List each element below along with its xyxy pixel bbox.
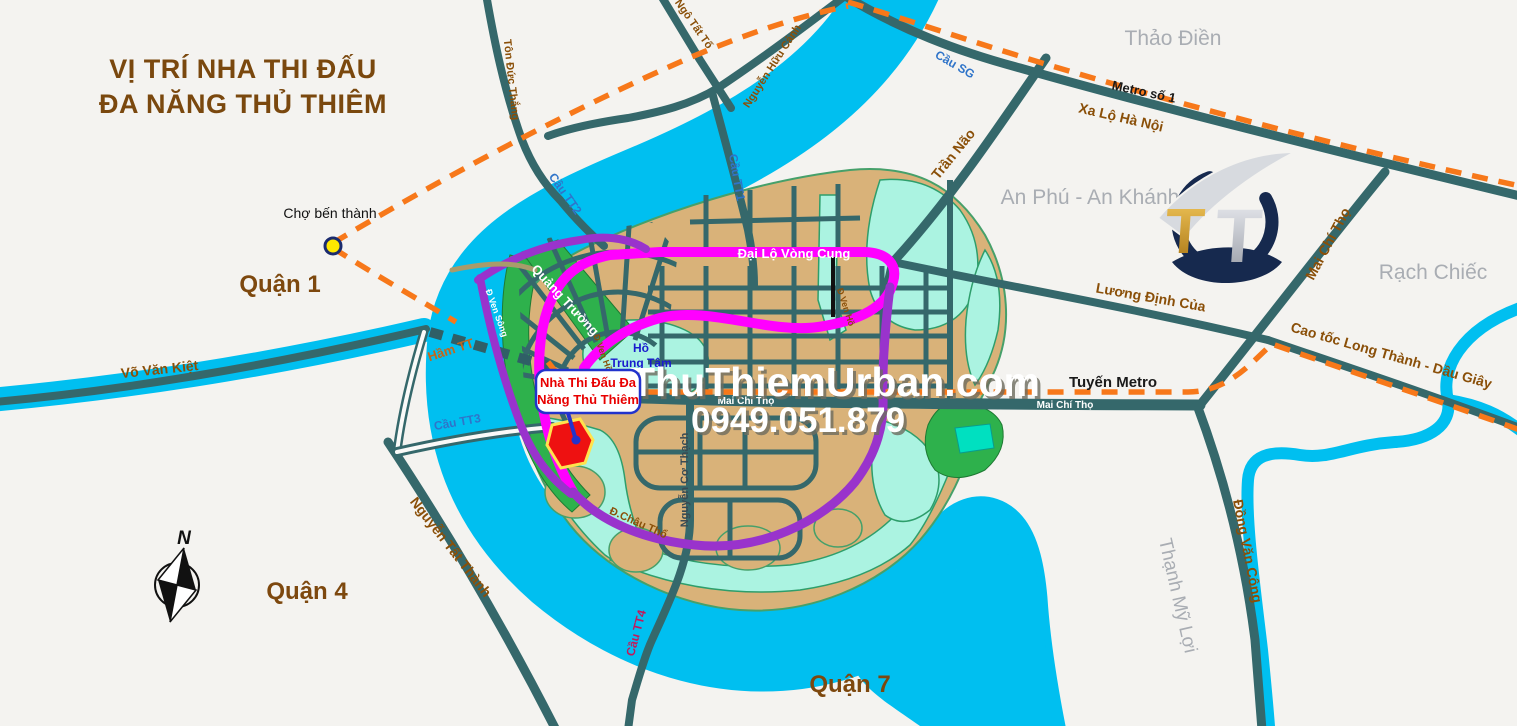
logo-letter-gold: T <box>1163 195 1207 267</box>
watermark-phone: 0949.051.879 <box>691 401 905 440</box>
label-quan-4: Quận 4 <box>266 578 348 605</box>
label-tuyen-metro: Tuyến Metro <box>1069 374 1157 391</box>
stadium-dot <box>572 436 581 445</box>
map-title-line1: VỊ TRÍ NHA THI ĐẤU <box>58 52 428 87</box>
label-an-phu-an-khanh: An Phú - An Khánh <box>1001 186 1180 209</box>
label-ho-trung-tam-1: Hồ <box>633 341 649 355</box>
compass-rose: N <box>155 528 199 622</box>
thuthiem-logo: T T <box>1158 152 1295 286</box>
label-mai-chi-tho-ne: Mai Chí Thọ <box>1302 205 1353 283</box>
label-quan-1: Quận 1 <box>239 271 320 298</box>
stadium-callout-line1: Nhà Thi Đấu Đa <box>540 375 637 390</box>
logo-letter-silver: T <box>1212 194 1264 279</box>
label-tran-nao: Trần Não <box>928 126 978 183</box>
map-title-line2: ĐA NĂNG THỦ THIÊM <box>58 87 428 122</box>
watermark-site: ThuThiemUrban.com <box>630 359 1040 405</box>
road-ton-duc-thang <box>486 0 560 200</box>
label-nguyen-co-thach: Nguyễn Cơ Thạch <box>678 432 691 527</box>
label-thao-dien: Thảo Điền <box>1125 27 1222 50</box>
label-mai-chi-tho-road-e: Mai Chí Thọ <box>1037 400 1094 411</box>
map-title: VỊ TRÍ NHA THI ĐẤU ĐA NĂNG THỦ THIÊM <box>58 52 428 122</box>
label-cho-ben-thanh: Chợ bến thành <box>283 205 376 221</box>
label-quan-7: Quận 7 <box>809 671 890 698</box>
compass-north-label: N <box>177 528 192 549</box>
label-thanh-my-loi: Thạnh Mỹ Lợi <box>1154 536 1201 655</box>
label-dai-lo-vong-cung: Đại Lộ Vòng Cung <box>738 246 851 261</box>
stadium-callout-line2: Năng Thủ Thiêm <box>537 392 639 407</box>
east-pond <box>955 424 994 453</box>
label-rach-chiec: Rạch Chiếc <box>1379 261 1488 284</box>
map-screenshot: Chợ bến thành Quận 1 Quận 4 Quận 7 Võ Vă… <box>0 0 1517 726</box>
ben-thanh-market-dot <box>325 238 341 254</box>
